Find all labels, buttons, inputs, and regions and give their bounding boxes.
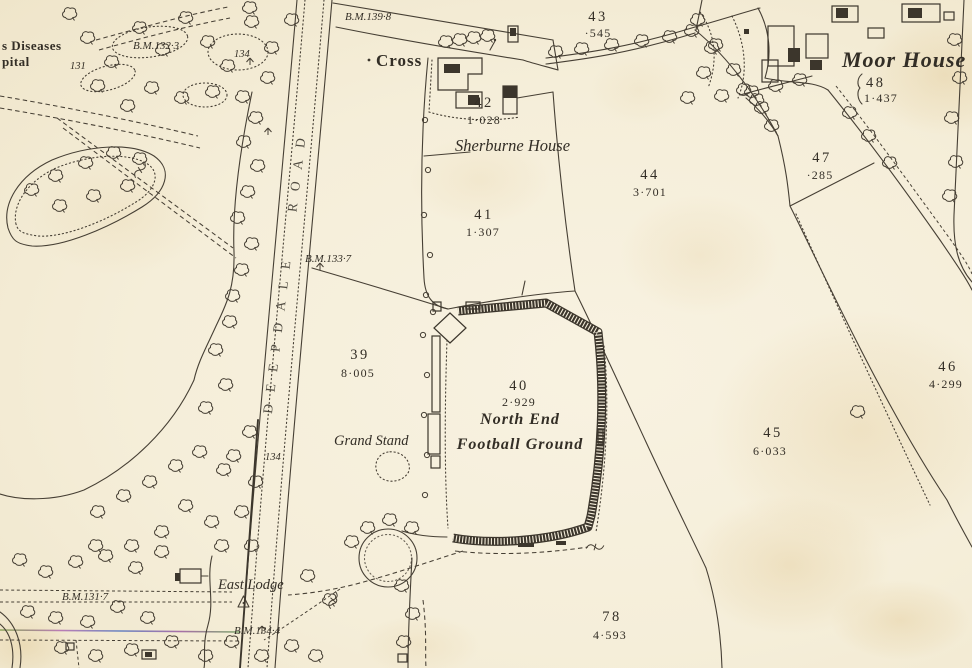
shrub-icon (424, 372, 429, 377)
parcel-43-number: 43 (588, 9, 608, 25)
label-sherburne-house: Sherburne House (455, 136, 570, 155)
label-north-end: North End (479, 411, 560, 428)
tree-icon (265, 42, 279, 55)
tree-icon (227, 450, 241, 463)
tree-icon (199, 402, 213, 415)
tree-icon (199, 650, 213, 663)
tree-icon (249, 112, 263, 125)
tree-icon (99, 550, 113, 563)
road-name-label: DEEPDALE ROAD (260, 125, 310, 414)
tree-icon (69, 556, 83, 569)
tree-icon (301, 570, 315, 583)
tree-icon (261, 72, 275, 85)
parcel-78-number: 78 (602, 609, 622, 625)
benchmark-133-7: B.M.133·7 (305, 253, 352, 265)
tree-icon (145, 82, 159, 95)
tree-icon (361, 522, 375, 535)
tree-icon (697, 67, 711, 80)
tree-icon (143, 476, 157, 489)
parcel-39-number: 39 (350, 347, 370, 363)
parcel-44-area: 3·701 (633, 185, 667, 199)
tree-icon (223, 316, 237, 329)
tree-icon (179, 12, 193, 25)
spot-height-134-road: 134 (265, 452, 282, 463)
cross-site-buildings (368, 26, 520, 120)
tree-icon (236, 91, 250, 104)
deepdale-road (240, 0, 332, 668)
tree-icon (245, 238, 259, 251)
tree-icon (89, 540, 103, 553)
tree-icon (175, 92, 189, 105)
tree-icon (133, 22, 147, 35)
label-football-ground: Football Ground (456, 436, 584, 453)
tree-icon (231, 212, 245, 225)
label-hospital-partial-2: pital (2, 54, 30, 69)
tree-icon (285, 14, 299, 27)
shrub-icon (427, 252, 432, 257)
shrub-icon (424, 452, 429, 457)
tree-icon (453, 34, 467, 47)
tree-icon (225, 636, 239, 649)
parcel-42-number: 42 (474, 95, 494, 111)
turnstile-building (434, 313, 466, 343)
tree-icon (111, 601, 125, 614)
label-grand-stand: Grand Stand (334, 433, 409, 449)
tree-icon (245, 16, 259, 29)
parcel-39-area: 8·005 (341, 366, 375, 380)
tree-icon (243, 426, 257, 439)
tree-icon (467, 32, 481, 45)
tree-icon (193, 446, 207, 459)
grand-stand-structure (432, 336, 440, 412)
tree-icon (243, 2, 257, 15)
tree-icon (221, 60, 235, 73)
parcel-45-number: 45 (763, 425, 783, 441)
tree-icon (165, 636, 179, 649)
tree-icon (481, 30, 495, 43)
parcel-42-area: 1·028 (467, 113, 501, 127)
tree-icon (125, 644, 139, 657)
road-name-text: DEEPDALE ROAD (260, 125, 310, 414)
tree-icon (63, 8, 77, 21)
tree-icon (169, 460, 183, 473)
tree-icon (117, 490, 131, 503)
parcel-44-number: 44 (640, 167, 660, 183)
tree-icon (39, 566, 53, 579)
tree-icon (81, 616, 95, 629)
spot-height-131: 131 (70, 61, 86, 72)
tree-icon (91, 80, 105, 93)
parcel-45-area: 6·033 (753, 444, 787, 458)
tree-icon (206, 86, 220, 99)
tree-icon (249, 476, 263, 489)
label-cross: Cross (376, 51, 422, 70)
tree-icon (285, 640, 299, 653)
parcel-40-area: 2·929 (502, 395, 536, 409)
parcel-47-number: 47 (812, 150, 832, 166)
shrub-icon (422, 492, 427, 497)
tree-icon (345, 536, 359, 549)
parcel-48-brace (858, 74, 862, 104)
tree-icon (209, 344, 223, 357)
tree-icon (155, 526, 169, 539)
tree-icon (91, 506, 105, 519)
tree-icon (13, 554, 27, 567)
tree-icon (89, 650, 103, 663)
parcel-43-area: ·545 (585, 26, 612, 40)
tree-icon (155, 546, 169, 559)
tree-icon (715, 90, 729, 103)
parcel-41-area: 1·307 (466, 225, 500, 239)
parcel-40-number: 40 (509, 378, 529, 394)
tree-icon (309, 650, 323, 663)
tree-icon (105, 56, 119, 69)
tree-icon (125, 540, 139, 553)
tree-icon (201, 36, 215, 49)
parcel-41-number: 41 (474, 207, 494, 223)
tree-icon (179, 500, 193, 513)
benchmark-134-4: B.M.134·4 (234, 625, 281, 637)
parcel-48-area: 1·437 (864, 91, 898, 105)
tree-icon (949, 156, 963, 169)
label-east-lodge: East Lodge (217, 577, 284, 593)
tree-icon (235, 506, 249, 519)
map-canvas: s Diseases pital 131 B.M.132·3 134 B.M.1… (0, 0, 972, 668)
tree-icon (605, 39, 619, 52)
tree-icon (217, 464, 231, 477)
shrub-icon (421, 412, 426, 417)
tree-icon (81, 32, 95, 45)
tree-icon (235, 264, 249, 277)
benchmark-132-3: B.M.132·3 (133, 40, 180, 52)
benchmark-131-7: B.M.131·7 (62, 591, 109, 603)
football-ground (288, 302, 607, 668)
tree-icon (241, 186, 255, 199)
benchmark-139-8: B.M.139·8 (345, 11, 392, 23)
parcel-47-area: ·285 (807, 168, 834, 182)
tree-icon (383, 514, 397, 527)
parcel-46-number: 46 (938, 359, 958, 375)
tree-icon (251, 160, 265, 173)
tree-icon (205, 516, 219, 529)
parcel-48-number: 48 (866, 75, 886, 91)
tree-icon (215, 540, 229, 553)
parcel-46-area: 4·299 (929, 377, 963, 391)
os-map-screenshot: s Diseases pital 131 B.M.132·3 134 B.M.1… (0, 0, 972, 668)
spot-height-134-park: 134 (234, 49, 251, 60)
benchmark-arrows (247, 58, 324, 633)
tree-icon (121, 100, 135, 113)
tree-icon (219, 379, 233, 392)
tree-icon (129, 562, 143, 575)
tree-icon (255, 650, 269, 663)
tree-icon (141, 612, 155, 625)
shrub-icon (420, 332, 425, 337)
parcel-78-area: 4·593 (593, 628, 627, 642)
label-moor-house: Moor House (841, 47, 966, 72)
label-hospital-partial-1: s Diseases (2, 38, 62, 53)
